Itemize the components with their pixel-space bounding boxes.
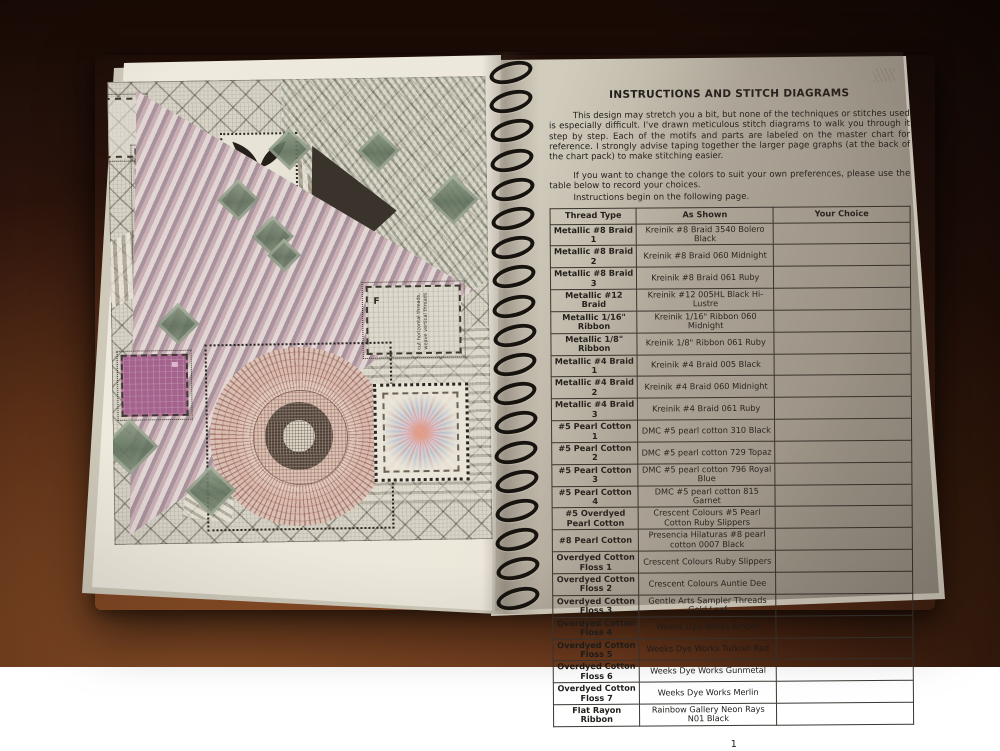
table-row: Overdyed Cotton Floss 6Weeks Dye Works G… xyxy=(553,659,913,683)
your-choice-cell xyxy=(777,680,914,703)
your-choice-cell xyxy=(776,659,913,682)
starburst-square-motif xyxy=(373,382,469,482)
table-row: Overdyed Cotton Floss 4Weeks Dye Works A… xyxy=(553,615,913,639)
your-choice-cell xyxy=(777,702,914,725)
as-shown-cell: Weeks Dye Works Merlin xyxy=(640,681,777,704)
thread-type-cell: Flat Rayon Ribbon xyxy=(553,704,640,726)
stitch-master-chart: F cut horizontal threads, weave vertical… xyxy=(107,76,492,545)
purple-square-inner-dot xyxy=(172,362,178,367)
motif-f-note: cut horizontal threads, weave vertical t… xyxy=(416,290,430,350)
thread-type-cell: Overdyed Cotton Floss 5 xyxy=(553,639,640,661)
your-choice-cell xyxy=(776,615,913,638)
spiderweb-mandala-motif xyxy=(208,346,390,528)
purple-square-motif xyxy=(121,354,188,417)
mandala-dotted-frame xyxy=(204,341,394,531)
table-row: Overdyed Cotton Floss 5Weeks Dye Works T… xyxy=(553,637,913,661)
your-choice-cell xyxy=(776,637,913,660)
as-shown-cell: Rainbow Gallery Neon Rays N01 Black xyxy=(640,703,777,726)
thread-type-cell: Overdyed Cotton Floss 7 xyxy=(553,682,640,704)
photo-scene: F cut horizontal threads, weave vertical… xyxy=(0,0,1000,667)
table-row: Flat Rayon RibbonRainbow Gallery Neon Ra… xyxy=(553,702,913,726)
thread-type-cell: Overdyed Cotton Floss 4 xyxy=(553,617,640,639)
table-row: Overdyed Cotton Floss 7Weeks Dye Works M… xyxy=(553,680,913,704)
starburst-rays xyxy=(382,392,460,473)
as-shown-cell: Weeks Dye Works Gunmetal xyxy=(640,660,777,683)
thread-type-cell: Overdyed Cotton Floss 6 xyxy=(553,661,640,683)
motif-f-label: F xyxy=(373,297,379,307)
as-shown-cell: Weeks Dye Works Turkish Red xyxy=(639,638,776,661)
as-shown-cell: Weeks Dye Works Amber xyxy=(639,616,776,639)
page-number: 1 xyxy=(553,738,914,751)
